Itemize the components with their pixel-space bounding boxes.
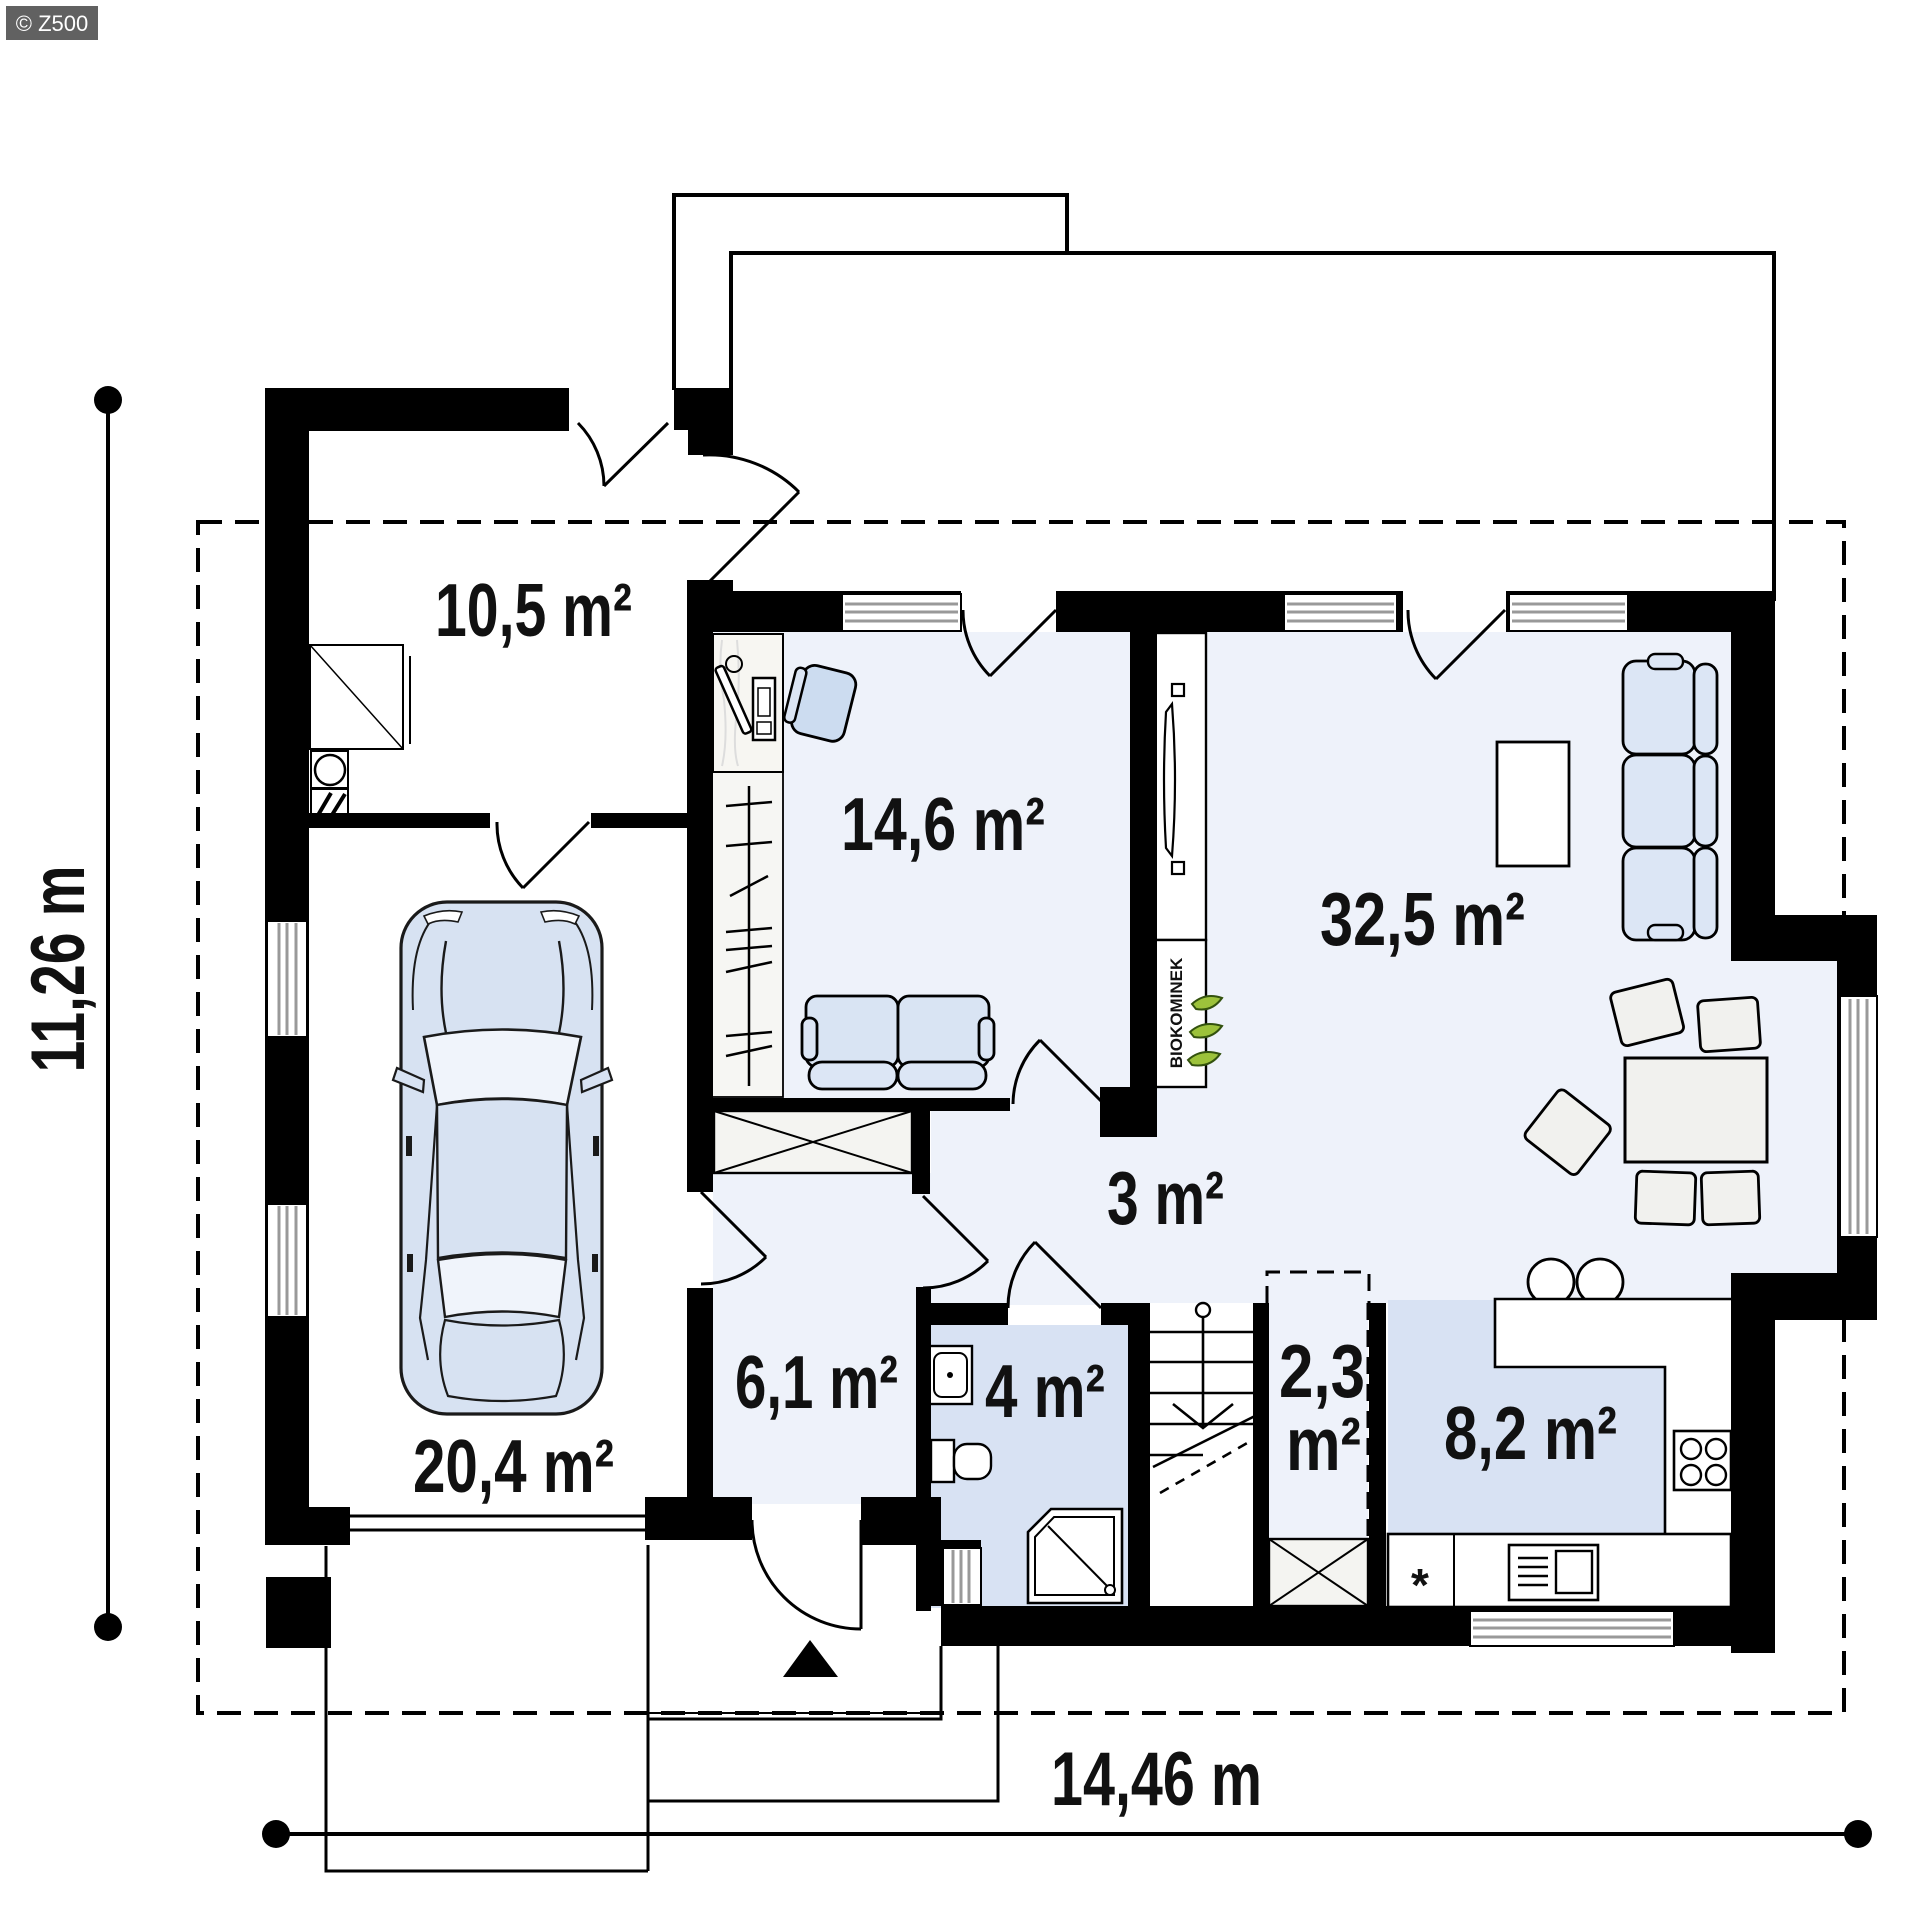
svg-text:m²: m² (1286, 1402, 1361, 1486)
svg-text:14,6 m²: 14,6 m² (841, 782, 1045, 866)
svg-text:11,26 m: 11,26 m (16, 866, 101, 1073)
svg-text:32,5 m²: 32,5 m² (1320, 877, 1525, 961)
svg-text:14,46 m: 14,46 m (1051, 1737, 1262, 1822)
svg-text:2,3: 2,3 (1279, 1329, 1365, 1413)
svg-text:6,1 m²: 6,1 m² (735, 1340, 898, 1424)
svg-text:8,2 m²: 8,2 m² (1444, 1391, 1617, 1475)
svg-text:3 m²: 3 m² (1107, 1156, 1224, 1240)
svg-text:4 m²: 4 m² (985, 1349, 1105, 1433)
svg-text:© Z500: © Z500 (16, 11, 88, 36)
svg-text:*: * (1411, 1559, 1429, 1611)
svg-text:10,5 m²: 10,5 m² (435, 568, 632, 652)
svg-text:20,4 m²: 20,4 m² (413, 1424, 614, 1508)
svg-text:BIOKOMINEK: BIOKOMINEK (1167, 957, 1186, 1068)
